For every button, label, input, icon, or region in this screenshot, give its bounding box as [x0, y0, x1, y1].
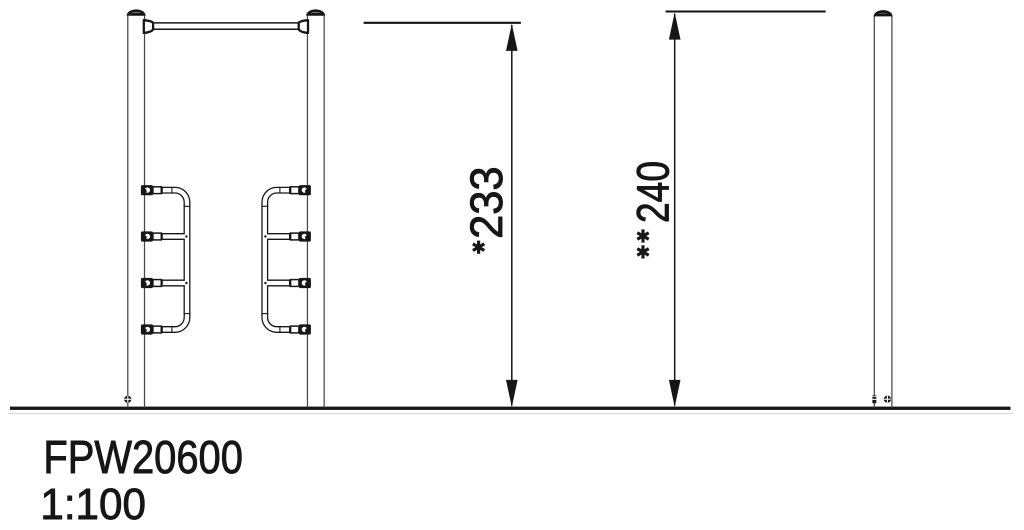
- svg-text:233: 233: [461, 166, 512, 239]
- svg-text:240: 240: [628, 161, 679, 223]
- svg-text:FPW20600: FPW20600: [43, 431, 243, 483]
- svg-text:1:100: 1:100: [40, 480, 145, 529]
